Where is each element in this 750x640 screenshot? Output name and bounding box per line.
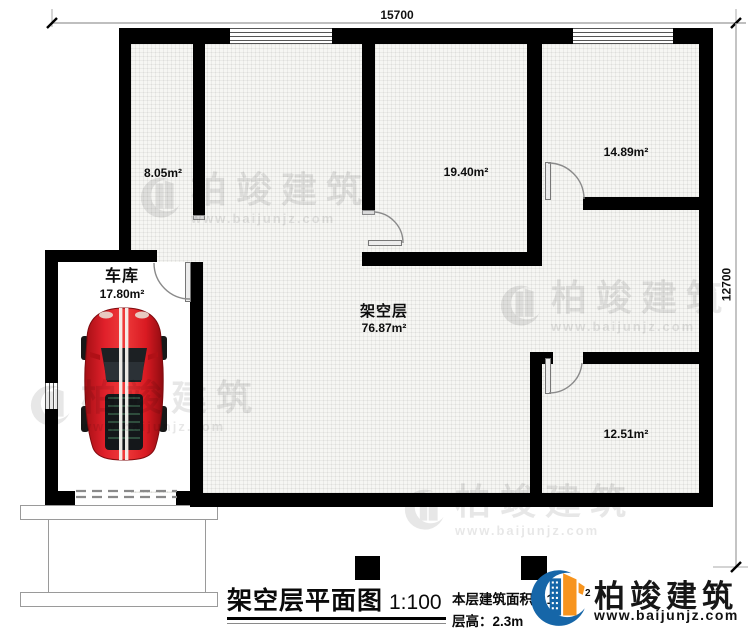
wall-room1940-room1489-divider — [527, 44, 542, 266]
garage-bottom-wall-seg-2 — [176, 491, 203, 505]
watermark-text: 柏竣建筑 www.baijunjz.com — [455, 484, 635, 538]
brand-logo-tower-blue — [550, 578, 561, 615]
watermark-url: www.baijunjz.com — [551, 319, 731, 334]
column-marker-1 — [355, 556, 380, 580]
driveway-top-bar — [20, 505, 218, 520]
door-leaf-stilt — [368, 240, 402, 246]
watermark: 柏竣建筑 www.baijunjz.com — [402, 484, 635, 538]
garage-left-wall — [45, 250, 58, 505]
room-label-1940: 19.40m² — [423, 165, 509, 179]
door-leaf-room1489 — [545, 162, 551, 200]
floor-plan-canvas: 15700 12700 — [0, 0, 750, 640]
wall-room1251-top-seg-2 — [583, 352, 699, 364]
wall-left-outer — [119, 28, 131, 262]
driveway-right-edge — [205, 520, 206, 592]
floor-height-label: 层高： — [452, 614, 493, 629]
door-leaf-garage — [185, 262, 191, 302]
watermark-logo-icon — [138, 173, 184, 225]
car-headlight-left — [99, 312, 113, 319]
room-label-1251: 12.51m² — [583, 427, 669, 441]
watermark-text: 柏竣建筑 www.baijunjz.com — [551, 280, 731, 334]
room-area-garage: 17.80m² — [79, 287, 165, 301]
brand-logo-accent-orange — [579, 582, 585, 594]
window-top-2 — [573, 28, 673, 44]
watermark-url: www.baijunjz.com — [191, 211, 371, 226]
title-underline-thin — [227, 623, 446, 624]
dimension-top-label: 15700 — [357, 8, 437, 22]
room-label-1489: 14.89m² — [583, 145, 669, 159]
room-label-garage: 车库 17.80m² — [79, 268, 165, 301]
room-area-1251: 12.51m² — [583, 427, 669, 441]
garage-top-wall — [45, 250, 157, 262]
room-name-stilt: 架空层 — [341, 303, 427, 321]
watermark: 柏竣建筑 www.baijunjz.com — [28, 380, 261, 434]
driveway-left-edge — [48, 520, 49, 592]
watermark-text: 柏竣建筑 www.baijunjz.com — [191, 172, 371, 226]
wall-room1940-bottom — [362, 252, 542, 266]
wall-right-outer — [699, 28, 713, 507]
room-name-garage: 车库 — [79, 268, 165, 287]
room-area-1489: 14.89m² — [583, 145, 669, 159]
watermark-name: 柏竣建筑 — [81, 380, 261, 416]
window-top-1 — [230, 28, 332, 44]
watermark-text: 柏竣建筑 www.baijunjz.com — [81, 380, 261, 434]
wall-top-segment-2 — [332, 28, 573, 44]
wall-top-segment-1 — [119, 28, 230, 44]
tick-top-left — [47, 18, 57, 28]
car-headlight-right — [135, 312, 149, 319]
watermark-logo-icon — [28, 381, 74, 433]
plan-scale: 1:100 — [389, 591, 442, 615]
watermark-url: www.baijunjz.com — [81, 419, 261, 434]
room-area-1940: 19.40m² — [423, 165, 509, 179]
watermark-name: 柏竣建筑 — [551, 280, 731, 316]
watermark-name: 柏竣建筑 — [455, 484, 635, 520]
watermark-logo-icon — [402, 485, 448, 537]
brand-url: www.baijunjz.com — [594, 607, 739, 623]
watermark: 柏竣建筑 www.baijunjz.com — [498, 280, 731, 334]
tick-top-right — [731, 18, 741, 28]
brand-logo-icon — [527, 566, 591, 634]
title-underline-thick — [227, 617, 446, 620]
room-area-stilt: 76.87m² — [341, 321, 427, 335]
wall-room1251-left — [530, 352, 542, 493]
room-area-805: 8.05m² — [120, 166, 206, 180]
door-leaf-room1251 — [545, 358, 551, 394]
wall-room1489-bottom — [583, 197, 699, 210]
watermark-url: www.baijunjz.com — [455, 523, 635, 538]
brand-logo-building-orange — [563, 573, 576, 615]
room-label-805: 8.05m² — [120, 166, 206, 180]
room-label-stilt: 架空层 76.87m² — [341, 303, 427, 335]
plan-title: 架空层平面图 — [227, 581, 383, 617]
floor-area-superscript: 2 — [585, 588, 591, 599]
garage-bottom-wall-seg-1 — [45, 491, 75, 505]
watermark-logo-icon — [498, 281, 544, 333]
floor-height-value: 2.3m — [493, 614, 524, 629]
driveway-bottom-bar — [20, 592, 218, 607]
watermark-name: 柏竣建筑 — [191, 172, 371, 208]
floor-height-row: 层高：2.3m — [452, 610, 523, 630]
